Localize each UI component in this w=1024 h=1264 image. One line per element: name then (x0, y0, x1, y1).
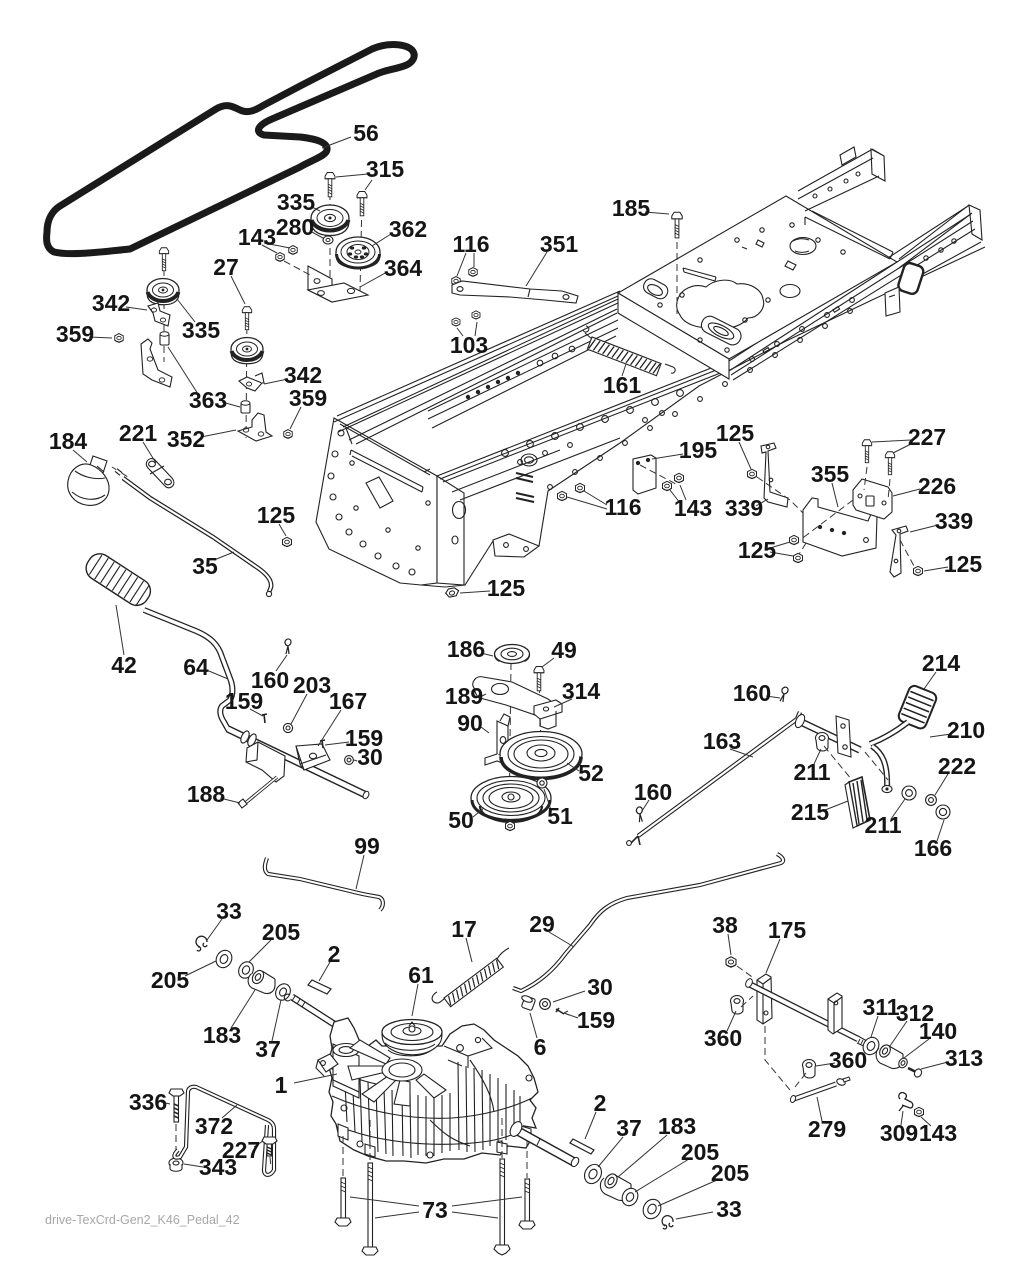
svg-text:52: 52 (578, 760, 604, 786)
svg-text:42: 42 (111, 652, 137, 678)
svg-text:359: 359 (56, 321, 94, 347)
svg-text:335: 335 (277, 189, 316, 215)
svg-text:205: 205 (151, 967, 190, 993)
svg-text:163: 163 (703, 728, 741, 754)
svg-text:195: 195 (679, 437, 718, 463)
svg-text:352: 352 (167, 426, 205, 452)
svg-text:160: 160 (634, 779, 672, 805)
svg-text:2: 2 (594, 1090, 607, 1116)
svg-text:161: 161 (603, 372, 642, 398)
svg-text:73: 73 (422, 1197, 448, 1223)
svg-text:drive-TexCrd-Gen2_K46_Pedal_42: drive-TexCrd-Gen2_K46_Pedal_42 (45, 1213, 240, 1227)
svg-text:37: 37 (255, 1036, 281, 1062)
svg-text:227: 227 (908, 424, 946, 450)
svg-text:140: 140 (919, 1018, 957, 1044)
svg-text:6: 6 (534, 1034, 547, 1060)
svg-text:175: 175 (768, 917, 807, 943)
svg-text:103: 103 (450, 332, 488, 358)
svg-text:143: 143 (674, 495, 712, 521)
svg-text:99: 99 (354, 833, 380, 859)
svg-text:359: 359 (289, 385, 327, 411)
svg-text:167: 167 (329, 688, 367, 714)
svg-text:313: 313 (945, 1045, 983, 1071)
svg-text:222: 222 (938, 753, 976, 779)
svg-text:210: 210 (947, 717, 985, 743)
svg-text:29: 29 (529, 911, 555, 937)
svg-text:125: 125 (738, 537, 777, 563)
svg-text:226: 226 (918, 473, 956, 499)
svg-text:33: 33 (716, 1196, 742, 1222)
svg-text:35: 35 (192, 553, 218, 579)
svg-text:143: 143 (919, 1120, 957, 1146)
svg-text:188: 188 (187, 781, 226, 807)
svg-text:309: 309 (880, 1120, 918, 1146)
svg-text:351: 351 (540, 231, 579, 257)
svg-text:183: 183 (203, 1022, 241, 1048)
svg-text:221: 221 (119, 420, 158, 446)
svg-text:205: 205 (711, 1160, 750, 1186)
svg-text:30: 30 (357, 744, 383, 770)
svg-text:315: 315 (366, 156, 405, 182)
svg-text:314: 314 (562, 678, 601, 704)
svg-text:166: 166 (914, 835, 952, 861)
svg-text:339: 339 (725, 495, 763, 521)
svg-text:125: 125 (716, 420, 755, 446)
svg-text:61: 61 (408, 962, 434, 988)
svg-text:279: 279 (808, 1116, 846, 1142)
svg-text:184: 184 (49, 428, 88, 454)
svg-text:38: 38 (712, 912, 738, 938)
svg-text:186: 186 (447, 636, 485, 662)
svg-text:56: 56 (353, 120, 379, 146)
svg-text:336: 336 (129, 1089, 167, 1115)
svg-text:205: 205 (262, 919, 301, 945)
svg-text:143: 143 (238, 224, 276, 250)
svg-text:362: 362 (389, 216, 427, 242)
svg-text:355: 355 (811, 461, 850, 487)
svg-text:211: 211 (864, 812, 901, 838)
svg-text:125: 125 (487, 575, 526, 601)
svg-text:27: 27 (213, 254, 239, 280)
svg-text:360: 360 (704, 1025, 742, 1051)
svg-text:116: 116 (604, 494, 641, 520)
svg-text:311: 311 (862, 994, 899, 1020)
svg-text:2: 2 (328, 941, 341, 967)
svg-text:159: 159 (225, 688, 263, 714)
svg-text:160: 160 (733, 680, 771, 706)
svg-text:1: 1 (275, 1072, 288, 1098)
svg-text:125: 125 (257, 502, 296, 528)
svg-text:214: 214 (922, 650, 961, 676)
svg-text:335: 335 (182, 317, 221, 343)
svg-text:372: 372 (195, 1113, 233, 1139)
svg-text:50: 50 (448, 807, 474, 833)
svg-text:360: 360 (829, 1047, 867, 1073)
svg-text:280: 280 (276, 214, 314, 240)
svg-text:90: 90 (457, 710, 483, 736)
svg-text:17: 17 (451, 916, 477, 942)
svg-text:364: 364 (384, 255, 423, 281)
svg-text:342: 342 (92, 290, 130, 316)
svg-text:33: 33 (216, 898, 242, 924)
svg-text:203: 203 (293, 672, 331, 698)
svg-text:339: 339 (935, 508, 973, 534)
svg-text:49: 49 (551, 637, 577, 663)
svg-text:159: 159 (577, 1007, 615, 1033)
svg-text:211: 211 (793, 759, 830, 785)
svg-text:189: 189 (445, 683, 483, 709)
svg-text:125: 125 (944, 551, 983, 577)
svg-text:183: 183 (658, 1113, 696, 1139)
svg-text:215: 215 (791, 799, 830, 825)
svg-text:185: 185 (612, 195, 651, 221)
svg-text:51: 51 (547, 803, 573, 829)
svg-text:30: 30 (587, 974, 613, 1000)
svg-text:37: 37 (616, 1115, 642, 1141)
svg-text:116: 116 (452, 231, 489, 257)
svg-text:343: 343 (199, 1154, 237, 1180)
svg-text:363: 363 (189, 387, 227, 413)
svg-text:64: 64 (183, 654, 209, 680)
